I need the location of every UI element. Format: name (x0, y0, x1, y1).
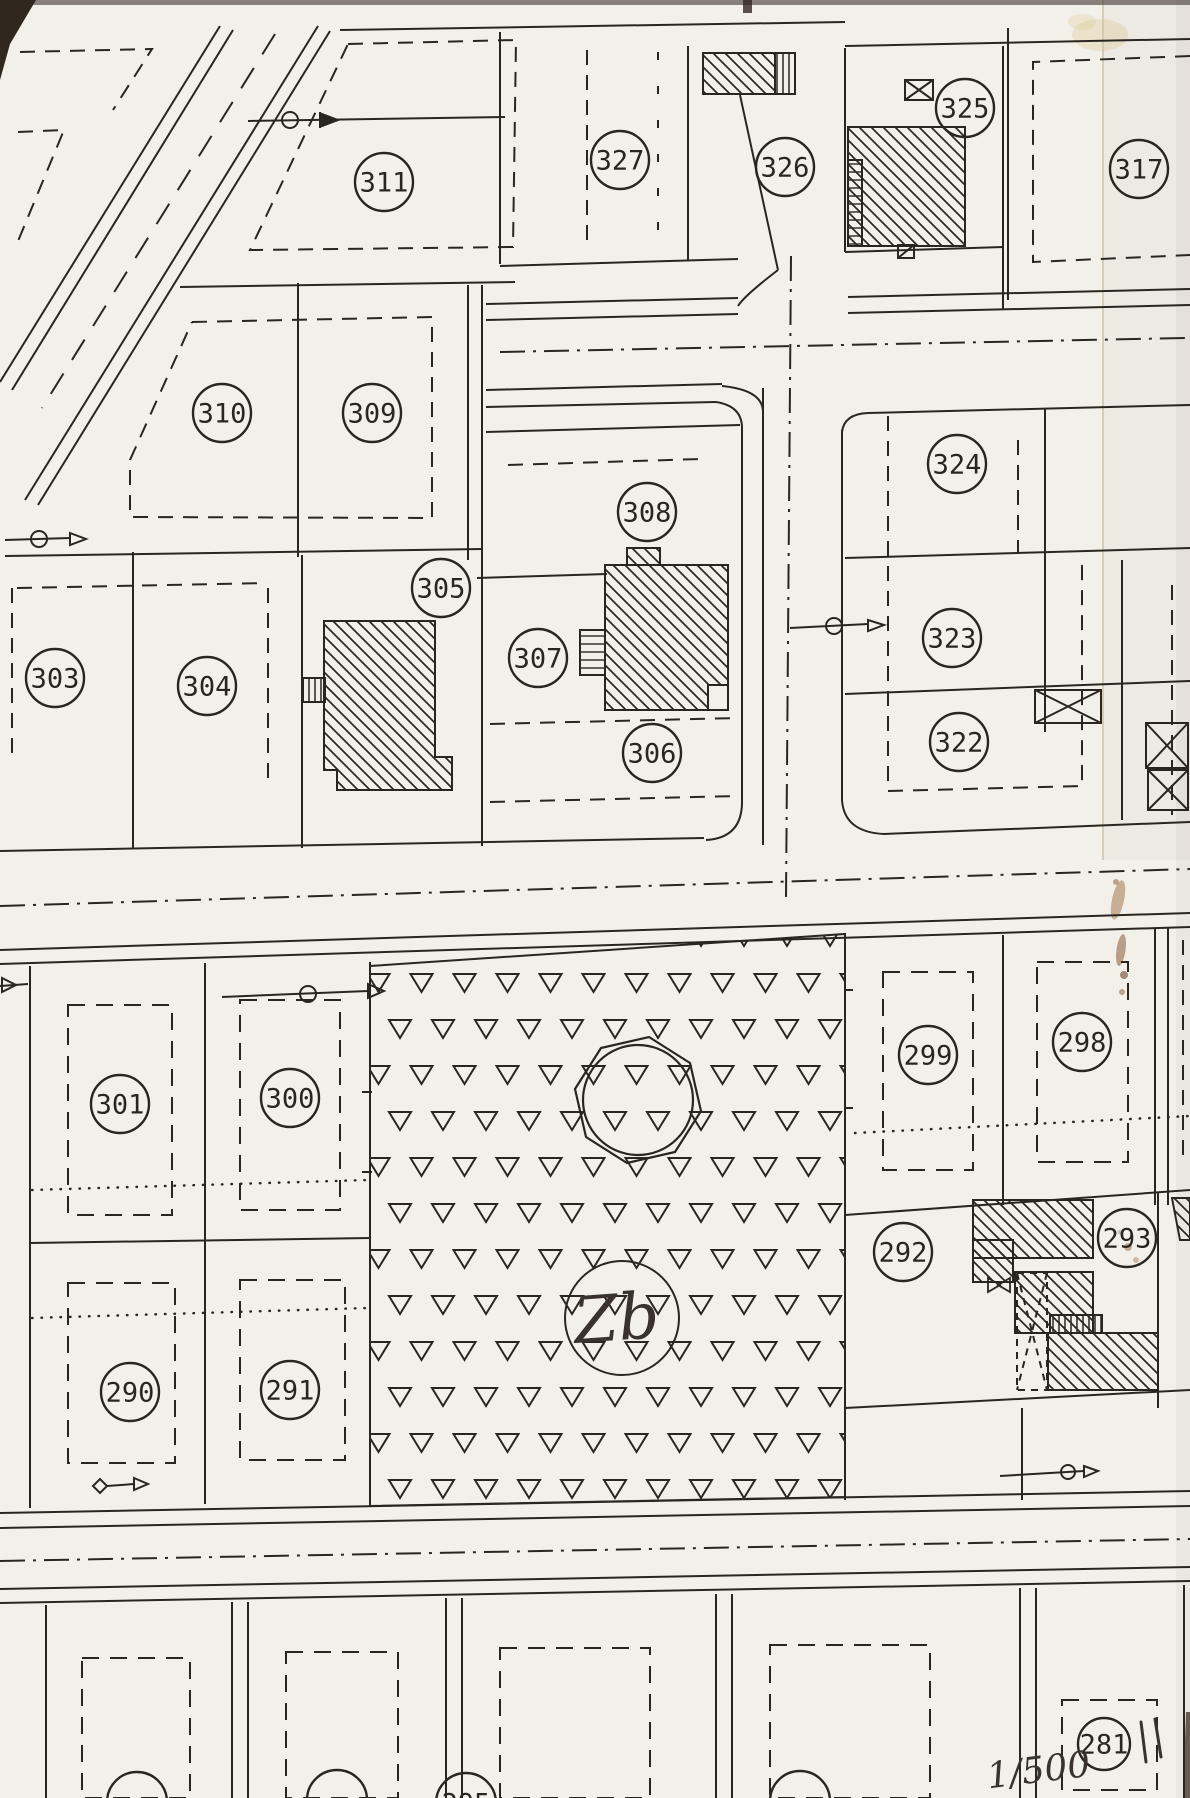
scan-top-nick (743, 0, 752, 13)
triangle-pattern-area (370, 934, 845, 1506)
rust-stain-upper (1108, 879, 1128, 995)
survey-marker-4 (0, 978, 384, 1002)
parcel-label-310: 310 (193, 384, 251, 442)
svg-text:299: 299 (904, 1040, 953, 1071)
survey-marker-2 (5, 531, 86, 547)
building-293-stairs (1050, 1315, 1102, 1333)
bottom-road-centerline (0, 1539, 1190, 1561)
svg-text:323: 323 (928, 623, 977, 654)
svg-text:324: 324 (933, 449, 982, 480)
svg-text:298: 298 (1058, 1027, 1107, 1058)
boundaries-layer (5, 22, 1190, 1798)
svg-text:295: 295 (442, 1788, 491, 1798)
parcel-label-292: 292 (874, 1223, 932, 1281)
svg-text:308: 308 (623, 497, 672, 528)
svg-text:311: 311 (360, 167, 409, 198)
area-label: Zb (569, 1279, 661, 1359)
crossed-box-325 (905, 80, 933, 100)
parcel-label-unreadable (307, 1770, 367, 1798)
parcel-label-311: 311 (355, 153, 413, 211)
parcel-label-291: 291 (261, 1361, 319, 1419)
building-325-stairs (848, 160, 862, 246)
dashed-corner-b (16, 130, 64, 246)
svg-text:317: 317 (1115, 154, 1164, 185)
building-top-a (703, 53, 775, 94)
parcel-label-326: 326 (756, 138, 814, 196)
map-canvas: Zb (0, 0, 1190, 1798)
survey-marker-6 (1000, 1465, 1098, 1479)
svg-text:309: 309 (348, 398, 397, 429)
building-325 (848, 127, 965, 246)
parcel-label-304: 304 (178, 657, 236, 715)
building-304-annex (303, 678, 325, 702)
parcel-label-290: 290 (101, 1363, 159, 1421)
vertical-road-centerline (786, 256, 791, 898)
parcel-label-309: 309 (343, 384, 401, 442)
parcel-label-303: 303 (26, 649, 84, 707)
parcel-label-298: 298 (1053, 1013, 1111, 1071)
parcel-label-301: 301 (91, 1075, 149, 1133)
building-293-b (1048, 1333, 1158, 1390)
svg-text:304: 304 (183, 671, 232, 702)
parcel-label-323: 323 (923, 609, 981, 667)
cadastral-map-scan: Zb (0, 0, 1190, 1798)
parcel-label-unreadable (770, 1771, 830, 1798)
svg-text:307: 307 (514, 643, 563, 674)
parcel-label-307: 307 (509, 629, 567, 687)
parcel-label-293: 293 (1098, 1209, 1156, 1267)
building-292-b (973, 1240, 1013, 1282)
paper-artifacts (0, 0, 1190, 1798)
parcel-label-324: 324 (928, 435, 986, 493)
svg-text:292: 292 (879, 1237, 928, 1268)
svg-text:291: 291 (266, 1375, 315, 1406)
survey-marker-1 (248, 112, 505, 128)
annotations-layer: 1/500 (985, 1719, 1161, 1797)
parcel-label-308: 308 (618, 483, 676, 541)
parcel-label-305: 305 (412, 559, 470, 617)
survey-marker-3 (790, 618, 884, 634)
svg-text:290: 290 (106, 1377, 155, 1408)
svg-text:310: 310 (198, 398, 247, 429)
scan-top-edge (0, 0, 1190, 5)
diagonal-road-centerline (42, 34, 275, 408)
building-307-tab (627, 548, 660, 565)
survey-marker-5 (93, 1478, 148, 1493)
building-307-notch (708, 685, 728, 710)
middle-road-centerline (0, 869, 1190, 906)
svg-text:301: 301 (96, 1089, 145, 1120)
parcel-label-300: 300 (261, 1069, 319, 1127)
parcel-label-327: 327 (591, 131, 649, 189)
building-top-a-annex (775, 53, 795, 94)
svg-text:327: 327 (596, 145, 645, 176)
building-edge-fragment (1172, 1198, 1190, 1240)
vegetation-area: Zb (370, 934, 845, 1506)
parcel-label-unreadable (107, 1772, 167, 1798)
svg-text:322: 322 (935, 727, 984, 758)
dashed-corner-a (20, 49, 152, 110)
building-304 (324, 621, 452, 790)
parcel-label-299: 299 (899, 1026, 957, 1084)
scan-corner-wedge (0, 0, 36, 80)
parcel-label-322: 322 (930, 713, 988, 771)
svg-text:293: 293 (1103, 1223, 1152, 1254)
svg-text:326: 326 (761, 152, 810, 183)
svg-text:325: 325 (941, 93, 990, 124)
svg-text:306: 306 (628, 738, 677, 769)
svg-text:303: 303 (31, 663, 80, 694)
parcel-labels-layer: 3113273263253173103093083243053033043073… (26, 79, 1168, 1798)
svg-text:305: 305 (417, 573, 466, 604)
parcel-label-306: 306 (623, 724, 681, 782)
road-centerline (500, 338, 1185, 352)
building-307-stairs (580, 630, 605, 675)
svg-text:300: 300 (266, 1083, 315, 1114)
